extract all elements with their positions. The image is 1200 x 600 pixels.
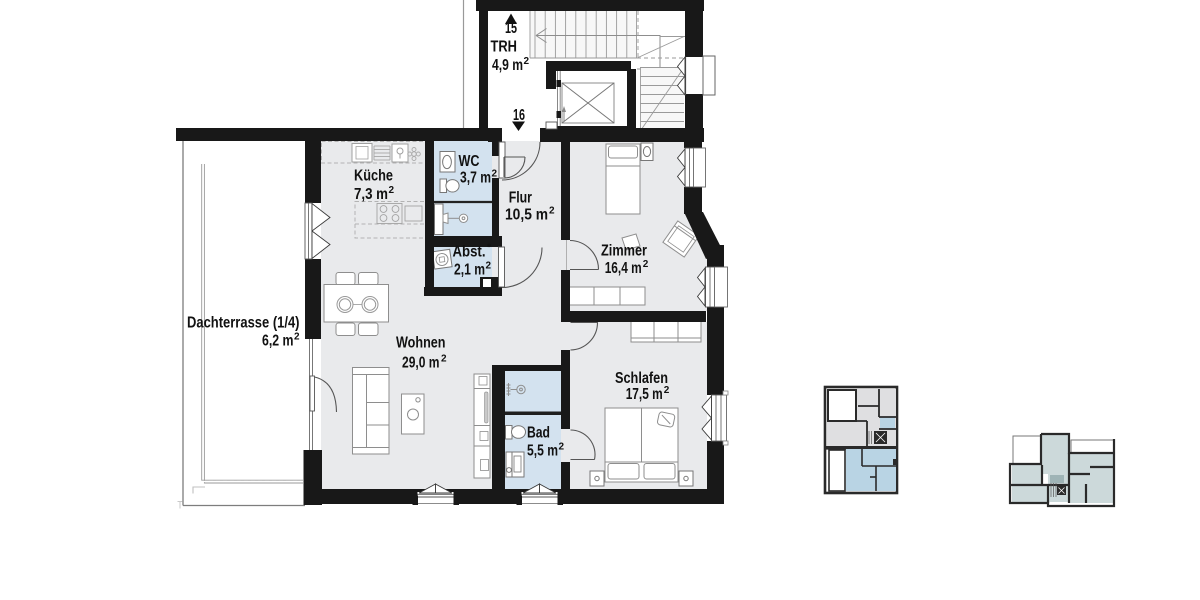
svg-text:15: 15 [505,20,517,37]
svg-text:16,4 m: 16,4 m [605,260,642,277]
svg-text:WC: WC [459,153,480,170]
svg-text:2: 2 [294,332,300,343]
svg-text:29,0 m: 29,0 m [402,355,440,372]
svg-text:Abst.: Abst. [453,244,486,261]
svg-text:Küche: Küche [354,168,393,185]
svg-text:2: 2 [643,259,649,270]
svg-text:2: 2 [664,385,670,396]
svg-text:*: * [487,243,491,254]
svg-text:2: 2 [559,442,565,453]
svg-text:16: 16 [513,107,525,124]
svg-text:Flur: Flur [509,190,532,207]
svg-text:Bad: Bad [527,425,550,442]
svg-text:6,2 m: 6,2 m [262,333,294,350]
svg-text:2: 2 [549,206,555,217]
svg-text:2: 2 [492,169,498,180]
svg-text:3,7 m: 3,7 m [460,170,491,187]
svg-text:2: 2 [441,354,447,365]
svg-text:TRH: TRH [491,39,518,56]
svg-text:2: 2 [524,56,530,67]
svg-text:Dachterrasse (1/4): Dachterrasse (1/4) [187,315,300,332]
svg-text:7,3 m: 7,3 m [354,186,388,203]
svg-text:Schlafen: Schlafen [615,370,668,387]
svg-text:Wohnen: Wohnen [396,335,446,352]
svg-text:Zimmer: Zimmer [601,243,647,260]
svg-text:5,5 m: 5,5 m [527,443,558,460]
svg-text:2: 2 [486,261,492,272]
svg-text:4,9 m: 4,9 m [492,57,523,74]
svg-text:2,1 m: 2,1 m [454,262,485,279]
svg-text:2: 2 [389,185,395,196]
svg-text:17,5 m: 17,5 m [626,386,663,403]
svg-text:10,5 m: 10,5 m [505,207,548,224]
